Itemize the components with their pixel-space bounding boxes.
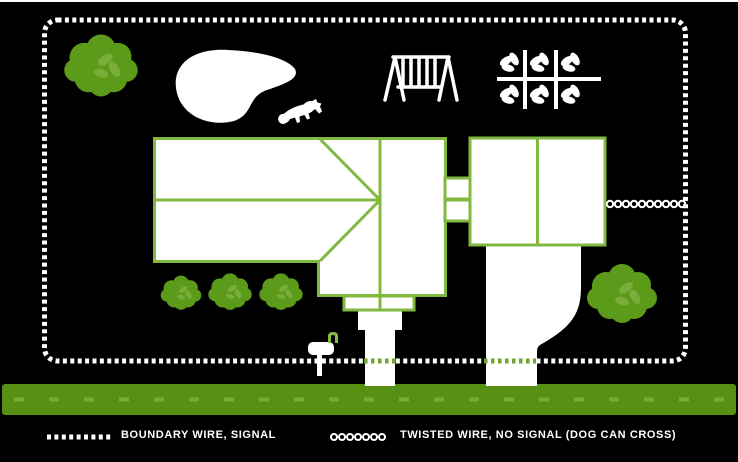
mailbox-flag-icon bbox=[328, 332, 338, 343]
house-footprint bbox=[155, 139, 446, 311]
plant-icon bbox=[559, 51, 582, 73]
legend-twisted-swatch bbox=[331, 434, 385, 440]
front-walk bbox=[358, 310, 402, 386]
garage-footprint bbox=[470, 138, 605, 245]
mailbox-icon bbox=[308, 332, 338, 376]
yard-plan-svg bbox=[0, 0, 738, 462]
plant-icon bbox=[498, 83, 521, 105]
driveway bbox=[486, 246, 581, 386]
bush-icon bbox=[587, 264, 657, 323]
pond-shape bbox=[176, 50, 296, 123]
yard-diagram: BOUNDARY WIRE, SIGNAL TWISTED WIRE, NO S… bbox=[0, 0, 738, 462]
dog-icon bbox=[278, 99, 322, 124]
bush-icon bbox=[64, 35, 138, 97]
plant-icon bbox=[498, 51, 521, 73]
garden-grid-icon bbox=[497, 50, 601, 109]
legend-boundary-label: BOUNDARY WIRE, SIGNAL bbox=[121, 428, 276, 442]
bush-icon bbox=[208, 273, 251, 310]
bush-icon bbox=[259, 273, 302, 310]
twisted-wire bbox=[607, 201, 685, 207]
bush-icon bbox=[161, 276, 202, 310]
plant-icon bbox=[559, 83, 582, 105]
plant-icon bbox=[528, 83, 551, 105]
legend-twisted-label: TWISTED WIRE, NO SIGNAL (DOG CAN CROSS) bbox=[400, 428, 676, 442]
house-steps bbox=[344, 296, 414, 310]
plant-icon bbox=[528, 51, 551, 73]
breezeway bbox=[445, 178, 471, 221]
swing-set-icon bbox=[385, 57, 457, 100]
